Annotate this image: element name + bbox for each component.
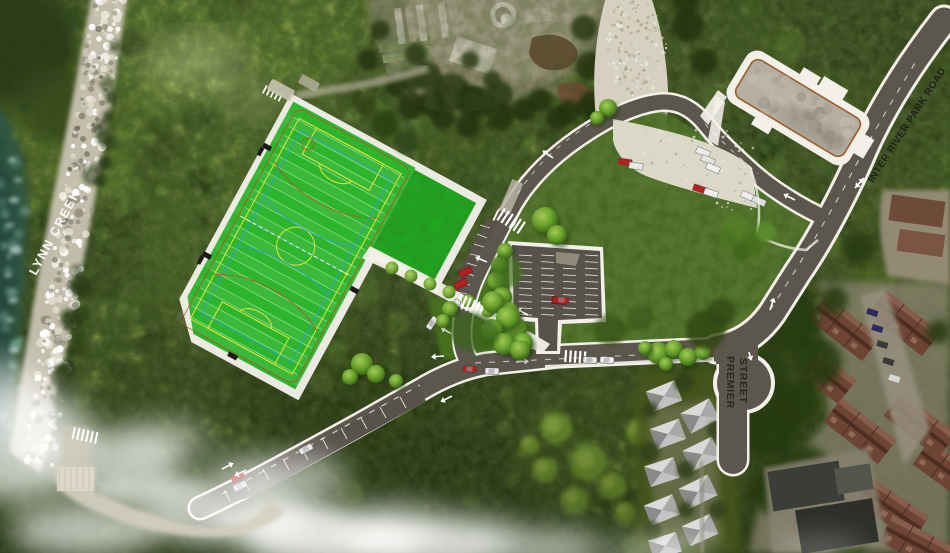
svg-text:STREET: STREET [737,358,749,404]
svg-text:PREMIER: PREMIER [724,356,736,409]
